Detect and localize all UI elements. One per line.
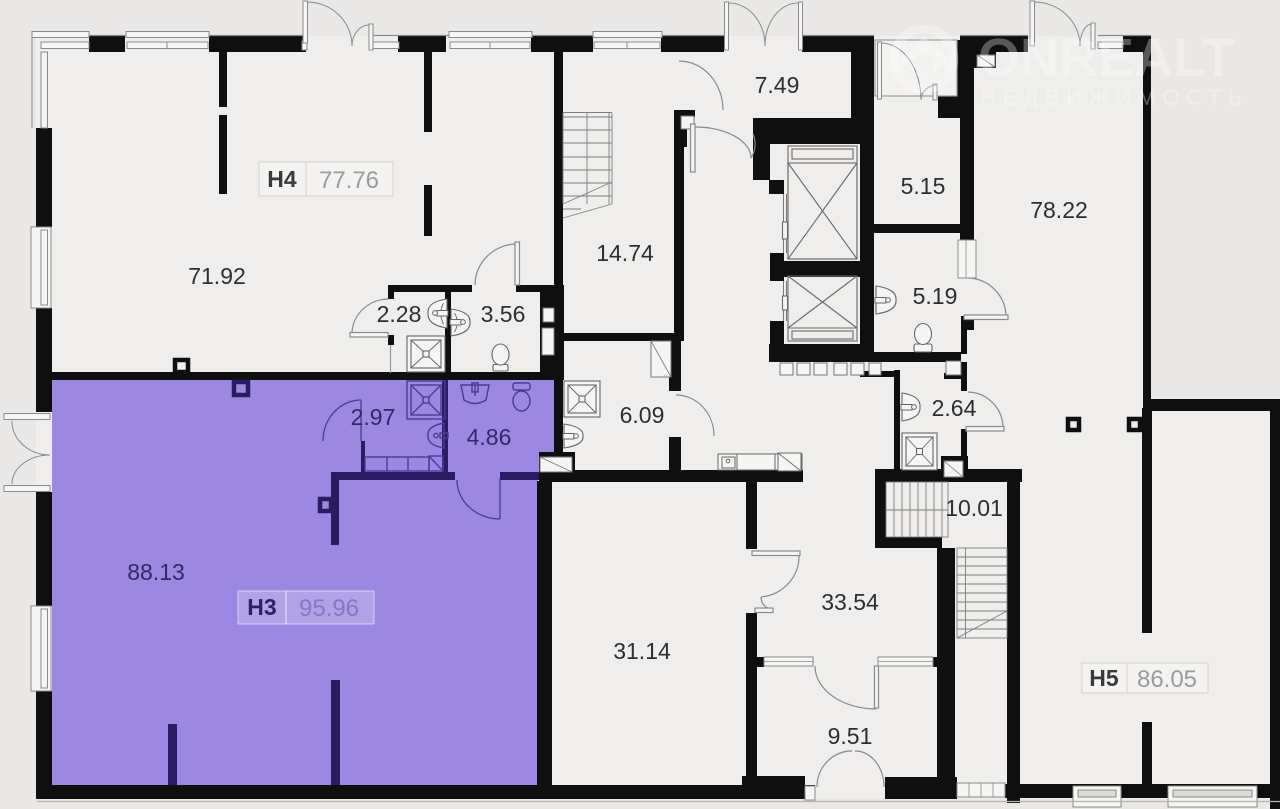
svg-text:86.05: 86.05 [1137, 666, 1197, 693]
svg-text:2.97: 2.97 [351, 404, 396, 430]
svg-text:ONREALT: ONREALT [978, 28, 1235, 88]
svg-text:10.01: 10.01 [945, 495, 1003, 521]
svg-text:4.86: 4.86 [467, 424, 512, 450]
svg-text:77.76: 77.76 [319, 167, 379, 194]
svg-text:78.22: 78.22 [1030, 197, 1088, 223]
svg-text:95.96: 95.96 [299, 595, 359, 622]
svg-text:33.54: 33.54 [821, 589, 879, 615]
svg-text:9.51: 9.51 [828, 723, 873, 749]
svg-text:5.15: 5.15 [901, 173, 946, 199]
svg-text:НЕДВИЖИМОСТЬ: НЕДВИЖИМОСТЬ [980, 85, 1249, 110]
svg-text:2.28: 2.28 [377, 301, 422, 327]
svg-text:Н5: Н5 [1089, 665, 1119, 691]
svg-text:6.09: 6.09 [620, 402, 665, 428]
svg-text:14.74: 14.74 [596, 240, 654, 266]
svg-text:2.64: 2.64 [932, 395, 977, 421]
svg-text:31.14: 31.14 [613, 638, 671, 664]
svg-text:Н4: Н4 [267, 166, 297, 192]
svg-text:3.56: 3.56 [481, 301, 526, 327]
svg-text:5.19: 5.19 [913, 283, 958, 309]
svg-text:7.49: 7.49 [755, 72, 800, 98]
svg-text:Н3: Н3 [247, 594, 276, 620]
svg-text:71.92: 71.92 [188, 263, 246, 289]
svg-text:88.13: 88.13 [127, 559, 185, 585]
